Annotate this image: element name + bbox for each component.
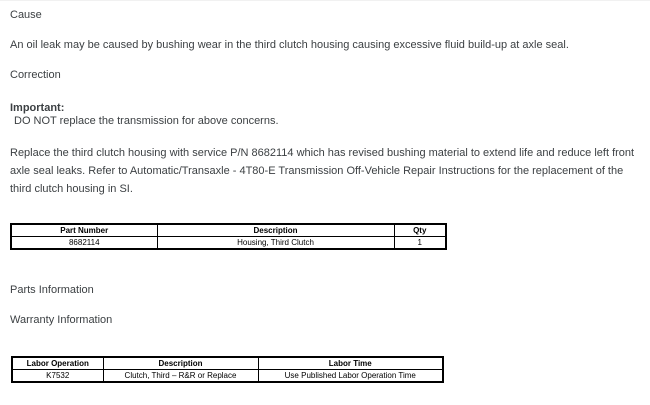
warranty-information-heading: Warranty Information <box>10 311 640 329</box>
parts-table: Part Number Description Qty 8682114 Hous… <box>10 223 447 250</box>
cause-heading: Cause <box>10 6 640 24</box>
parts-table-row: 8682114 Housing, Third Clutch 1 <box>11 237 446 250</box>
correction-heading: Correction <box>10 66 640 84</box>
parts-table-header-description: Description <box>157 224 394 237</box>
labor-table: Labor Operation Description Labor Time K… <box>11 356 444 383</box>
cause-paragraph: An oil leak may be caused by bushing wea… <box>10 36 640 54</box>
service-bulletin-page: Cause An oil leak may be caused by bushi… <box>0 0 650 405</box>
labor-table-header-labor-time: Labor Time <box>258 357 443 370</box>
labor-table-header-description: Description <box>103 357 258 370</box>
important-note-text: DO NOT replace the transmission for abov… <box>14 112 640 130</box>
parts-information-heading: Parts Information <box>10 281 640 299</box>
parts-table-header-part-number: Part Number <box>11 224 157 237</box>
labor-table-row: K7532 Clutch, Third – R&R or Replace Use… <box>12 370 443 383</box>
labor-table-cell-labor-operation: K7532 <box>12 370 103 383</box>
parts-table-header-qty: Qty <box>394 224 446 237</box>
labor-table-cell-labor-time: Use Published Labor Operation Time <box>258 370 443 383</box>
labor-table-cell-description: Clutch, Third – R&R or Replace <box>103 370 258 383</box>
parts-table-cell-description: Housing, Third Clutch <box>157 237 394 250</box>
labor-table-header-row: Labor Operation Description Labor Time <box>12 357 443 370</box>
correction-paragraph: Replace the third clutch housing with se… <box>10 144 640 198</box>
labor-table-header-labor-operation: Labor Operation <box>12 357 103 370</box>
parts-table-cell-qty: 1 <box>394 237 446 250</box>
parts-table-header-row: Part Number Description Qty <box>11 224 446 237</box>
parts-table-cell-part-number: 8682114 <box>11 237 157 250</box>
